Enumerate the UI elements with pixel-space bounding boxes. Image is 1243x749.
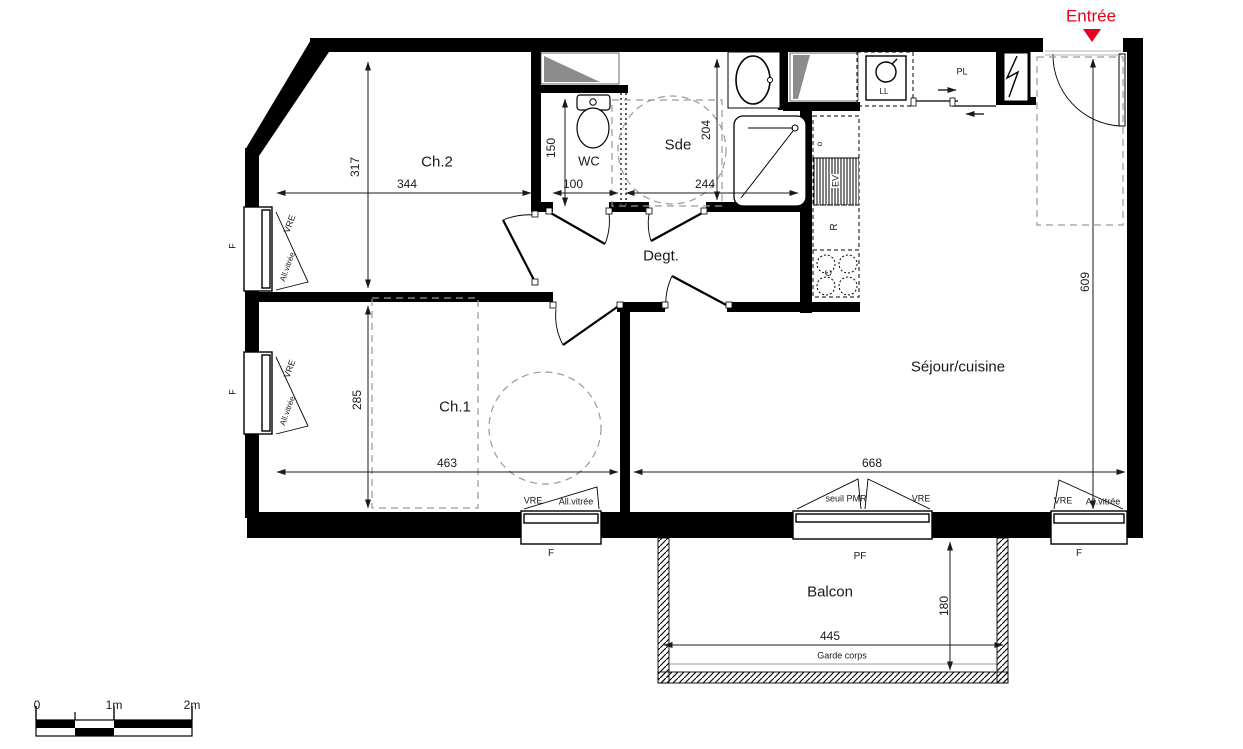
hob-c-label: C xyxy=(825,270,834,277)
dim-285: 285 xyxy=(351,390,363,410)
room-label-sde: Sde xyxy=(665,138,692,153)
fridge-r-label: R xyxy=(830,223,840,230)
floor-plan-graphics xyxy=(0,0,1243,749)
closet-pl-label: PL xyxy=(956,68,967,77)
dim-204: 204 xyxy=(700,120,712,140)
window-vre-label: VRE xyxy=(912,495,931,504)
dim-100: 100 xyxy=(563,178,583,190)
dim-344: 344 xyxy=(397,178,417,190)
scale-0-label: 0 xyxy=(34,699,41,711)
room-label-balcon: Balcon xyxy=(807,585,853,600)
scale-1m-label: 1m xyxy=(106,699,123,711)
windows xyxy=(244,207,1127,544)
window-allvitree-label: All.vitrée xyxy=(559,498,594,507)
wc-sde-partition xyxy=(621,93,626,205)
room-label-ch1: Ch.1 xyxy=(439,400,471,415)
room-label-sejour: Séjour/cuisine xyxy=(911,360,1005,375)
closet-front xyxy=(911,90,996,114)
washbasin-icon xyxy=(728,52,780,108)
dim-180: 180 xyxy=(938,596,950,616)
entrance-arrow-icon xyxy=(1083,29,1101,42)
dim-609: 609 xyxy=(1079,272,1091,292)
balcony-railing xyxy=(658,538,1008,683)
sink-ev-label: EV xyxy=(832,174,841,188)
dim-445: 445 xyxy=(820,630,840,642)
toilet-icon xyxy=(577,95,610,148)
seuil-pmr-label: seuil PMR xyxy=(825,495,866,504)
electrical-panel-icon xyxy=(1003,52,1029,102)
scale-2m-label: 2m xyxy=(184,699,201,711)
dim-317: 317 xyxy=(349,157,361,177)
washing-machine-icon xyxy=(857,52,913,106)
dim-244: 244 xyxy=(695,178,715,190)
room-label-wc: WC xyxy=(578,155,600,168)
floor-plan: Entrée Ch.2 WC Sde Degt. Séjour/cuisine … xyxy=(0,0,1243,749)
window-vre-label: VRE xyxy=(1054,497,1073,506)
window-vre-label: VRE xyxy=(524,497,543,506)
room-label-degt: Degt. xyxy=(643,249,679,264)
garde-corps-label: Garde corps xyxy=(817,652,867,661)
dim-150: 150 xyxy=(545,138,557,158)
window-f-label: F xyxy=(229,243,238,249)
room-label-ch2: Ch.2 xyxy=(421,155,453,170)
dim-463: 463 xyxy=(437,457,457,469)
entrance-label: Entrée xyxy=(1066,8,1116,25)
window-f-label: F xyxy=(1076,549,1082,559)
window-f-label: F xyxy=(548,549,554,559)
dim-668: 668 xyxy=(862,457,882,469)
window-allvitree-label: All.vitrée xyxy=(1086,498,1121,507)
window-pf-label: PF xyxy=(854,552,867,562)
oven-o-label: o xyxy=(816,142,824,146)
washing-machine-ll-label: LL xyxy=(880,88,889,96)
window-f-label: F xyxy=(229,389,238,395)
duct-shafts xyxy=(541,53,858,101)
